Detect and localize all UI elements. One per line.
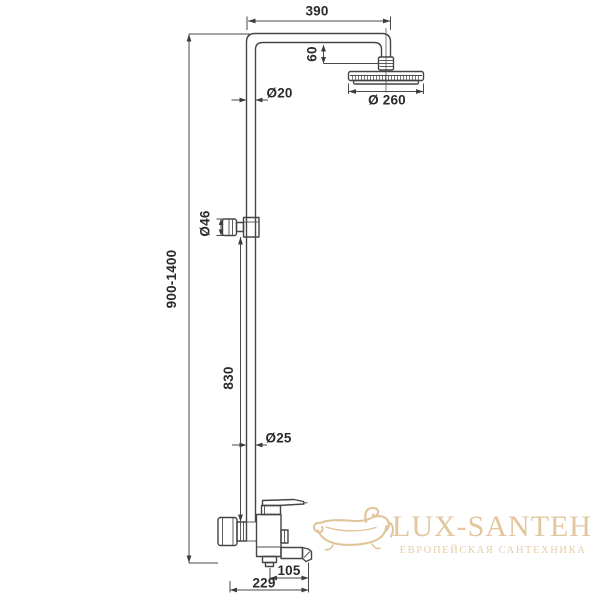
bathtub-icon (314, 508, 393, 550)
dim-d20: Ø20 (232, 86, 293, 103)
technical-drawing-page: LUX-SANTEH ЕВРОПЕЙСКАЯ САНТЕХНИКА (0, 0, 600, 600)
slider-bracket (223, 218, 260, 238)
dim-105: 105 (270, 563, 309, 581)
shower-column-drawing: LUX-SANTEH ЕВРОПЕЙСКАЯ САНТЕХНИКА (0, 0, 600, 600)
dim-830: 830 (221, 237, 243, 522)
dim-390: 390 (247, 4, 391, 31)
mixer-spout (281, 548, 312, 562)
watermark-brand: LUX-SANTEH (392, 510, 592, 543)
dim-label-830: 830 (221, 366, 236, 389)
dim-d46: Ø46 (198, 210, 227, 236)
dim-label-900-1400: 900-1400 (164, 250, 179, 309)
tailpiece (263, 557, 277, 567)
dim-label-60: 60 (305, 46, 320, 61)
dim-label-d260: Ø 260 (368, 93, 406, 108)
dim-60: 60 (305, 45, 381, 64)
watermark: LUX-SANTEH ЕВРОПЕЙСКАЯ САНТЕХНИКА (314, 508, 592, 556)
mixer-body (257, 515, 282, 557)
wall-flange (218, 518, 237, 546)
dim-label-229: 229 (252, 576, 275, 591)
slider-knob (223, 219, 237, 236)
dim-label-d20: Ø20 (267, 86, 293, 101)
mixer-lever (262, 500, 308, 515)
watermark-tagline: ЕВРОПЕЙСКАЯ САНТЕХНИКА (400, 544, 587, 556)
mixer-connection-nut (237, 522, 257, 541)
dim-label-d25: Ø25 (266, 431, 292, 446)
side-port (281, 530, 288, 543)
wall-mixer (218, 500, 312, 567)
dim-label-390: 390 (305, 4, 328, 19)
shower-system (218, 28, 424, 567)
dim-label-105: 105 (277, 563, 300, 578)
dim-label-d46: Ø46 (198, 210, 213, 236)
dim-900-1400: 900-1400 (164, 34, 250, 563)
